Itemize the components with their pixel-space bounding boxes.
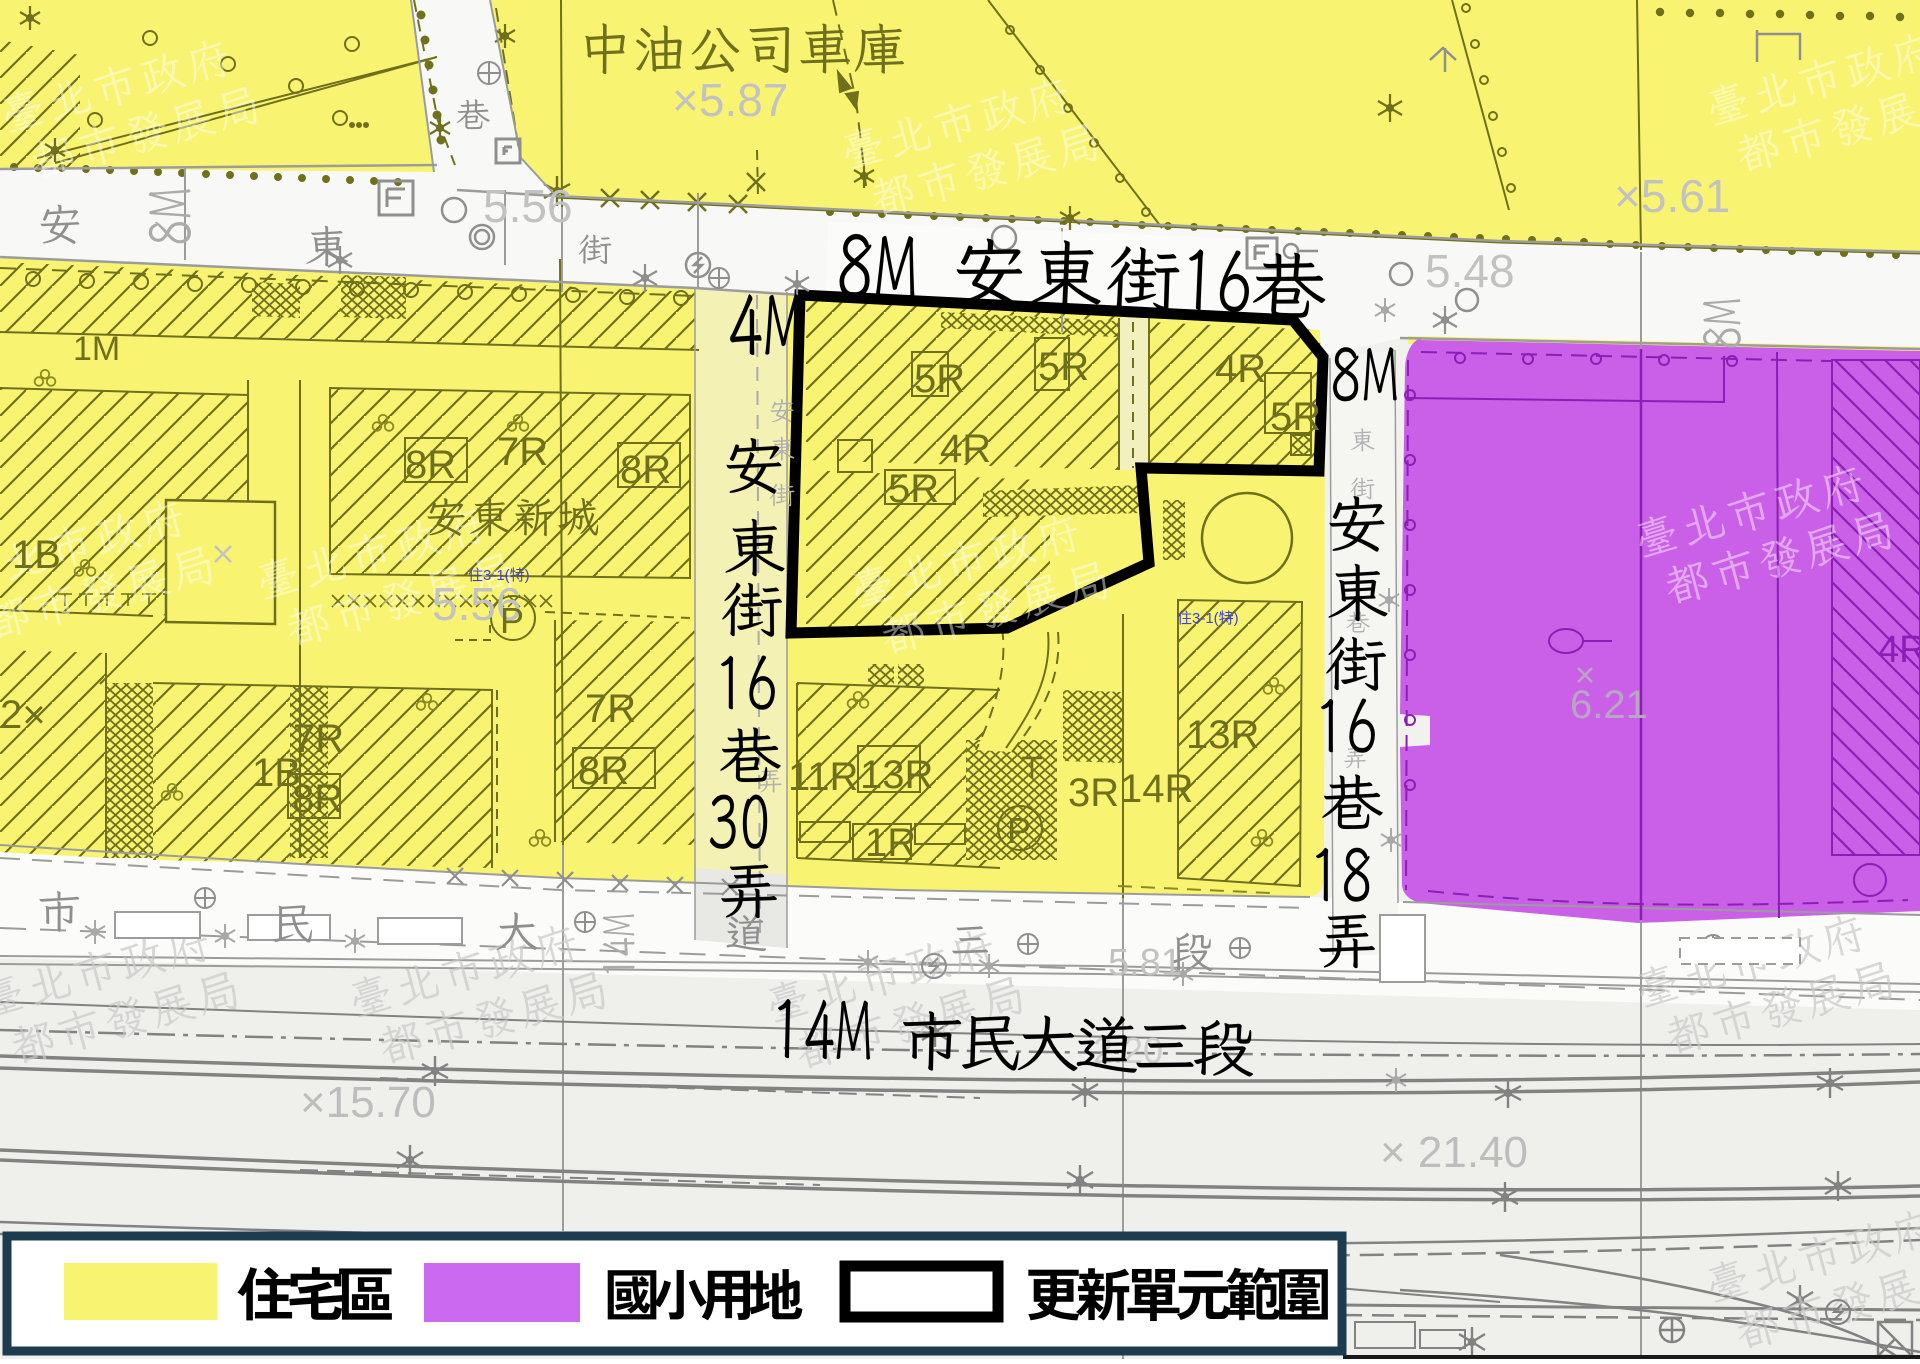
svg-text:5.81: 5.81 — [1108, 942, 1182, 984]
svg-text:1B: 1B — [252, 751, 301, 795]
svg-text:2×: 2× — [0, 693, 46, 737]
svg-text:14R: 14R — [1120, 767, 1193, 811]
svg-text:× 21.40: × 21.40 — [1380, 1128, 1528, 1177]
svg-text:8R: 8R — [578, 749, 629, 793]
svg-text:7R: 7R — [585, 687, 636, 731]
svg-text:×5.87: ×5.87 — [672, 74, 788, 126]
svg-text:1M: 1M — [73, 330, 120, 368]
svg-text:1R: 1R — [865, 821, 916, 865]
svg-text:5.56: 5.56 — [483, 180, 573, 232]
svg-text:4R: 4R — [1878, 629, 1920, 671]
svg-text:5.48: 5.48 — [1425, 245, 1515, 297]
svg-text:4R: 4R — [940, 427, 991, 471]
svg-text:13R: 13R — [1186, 713, 1259, 757]
svg-text:8R: 8R — [405, 443, 456, 487]
svg-text:5R: 5R — [1270, 395, 1321, 439]
svg-text:P: P — [1007, 810, 1031, 851]
svg-text:11R: 11R — [788, 755, 858, 799]
svg-text:6.21: 6.21 — [1570, 683, 1648, 727]
svg-text:1B: 1B — [12, 533, 61, 577]
svg-text:3R: 3R — [1068, 771, 1119, 815]
svg-text:8R: 8R — [620, 448, 671, 492]
svg-text:13R: 13R — [860, 753, 933, 797]
svg-text:P: P — [500, 600, 524, 641]
svg-text:住3-1(特): 住3-1(特) — [468, 567, 530, 584]
svg-text:×5.61: ×5.61 — [1614, 170, 1730, 222]
svg-text:7R: 7R — [497, 430, 548, 474]
svg-text:5R: 5R — [914, 357, 965, 401]
svg-text:住3-1(特): 住3-1(特) — [1177, 610, 1239, 627]
svg-text:4R: 4R — [1215, 347, 1266, 391]
svg-text:×15.70: ×15.70 — [300, 1078, 436, 1127]
svg-text:5R: 5R — [1038, 345, 1089, 389]
svg-text:5R: 5R — [888, 467, 939, 511]
